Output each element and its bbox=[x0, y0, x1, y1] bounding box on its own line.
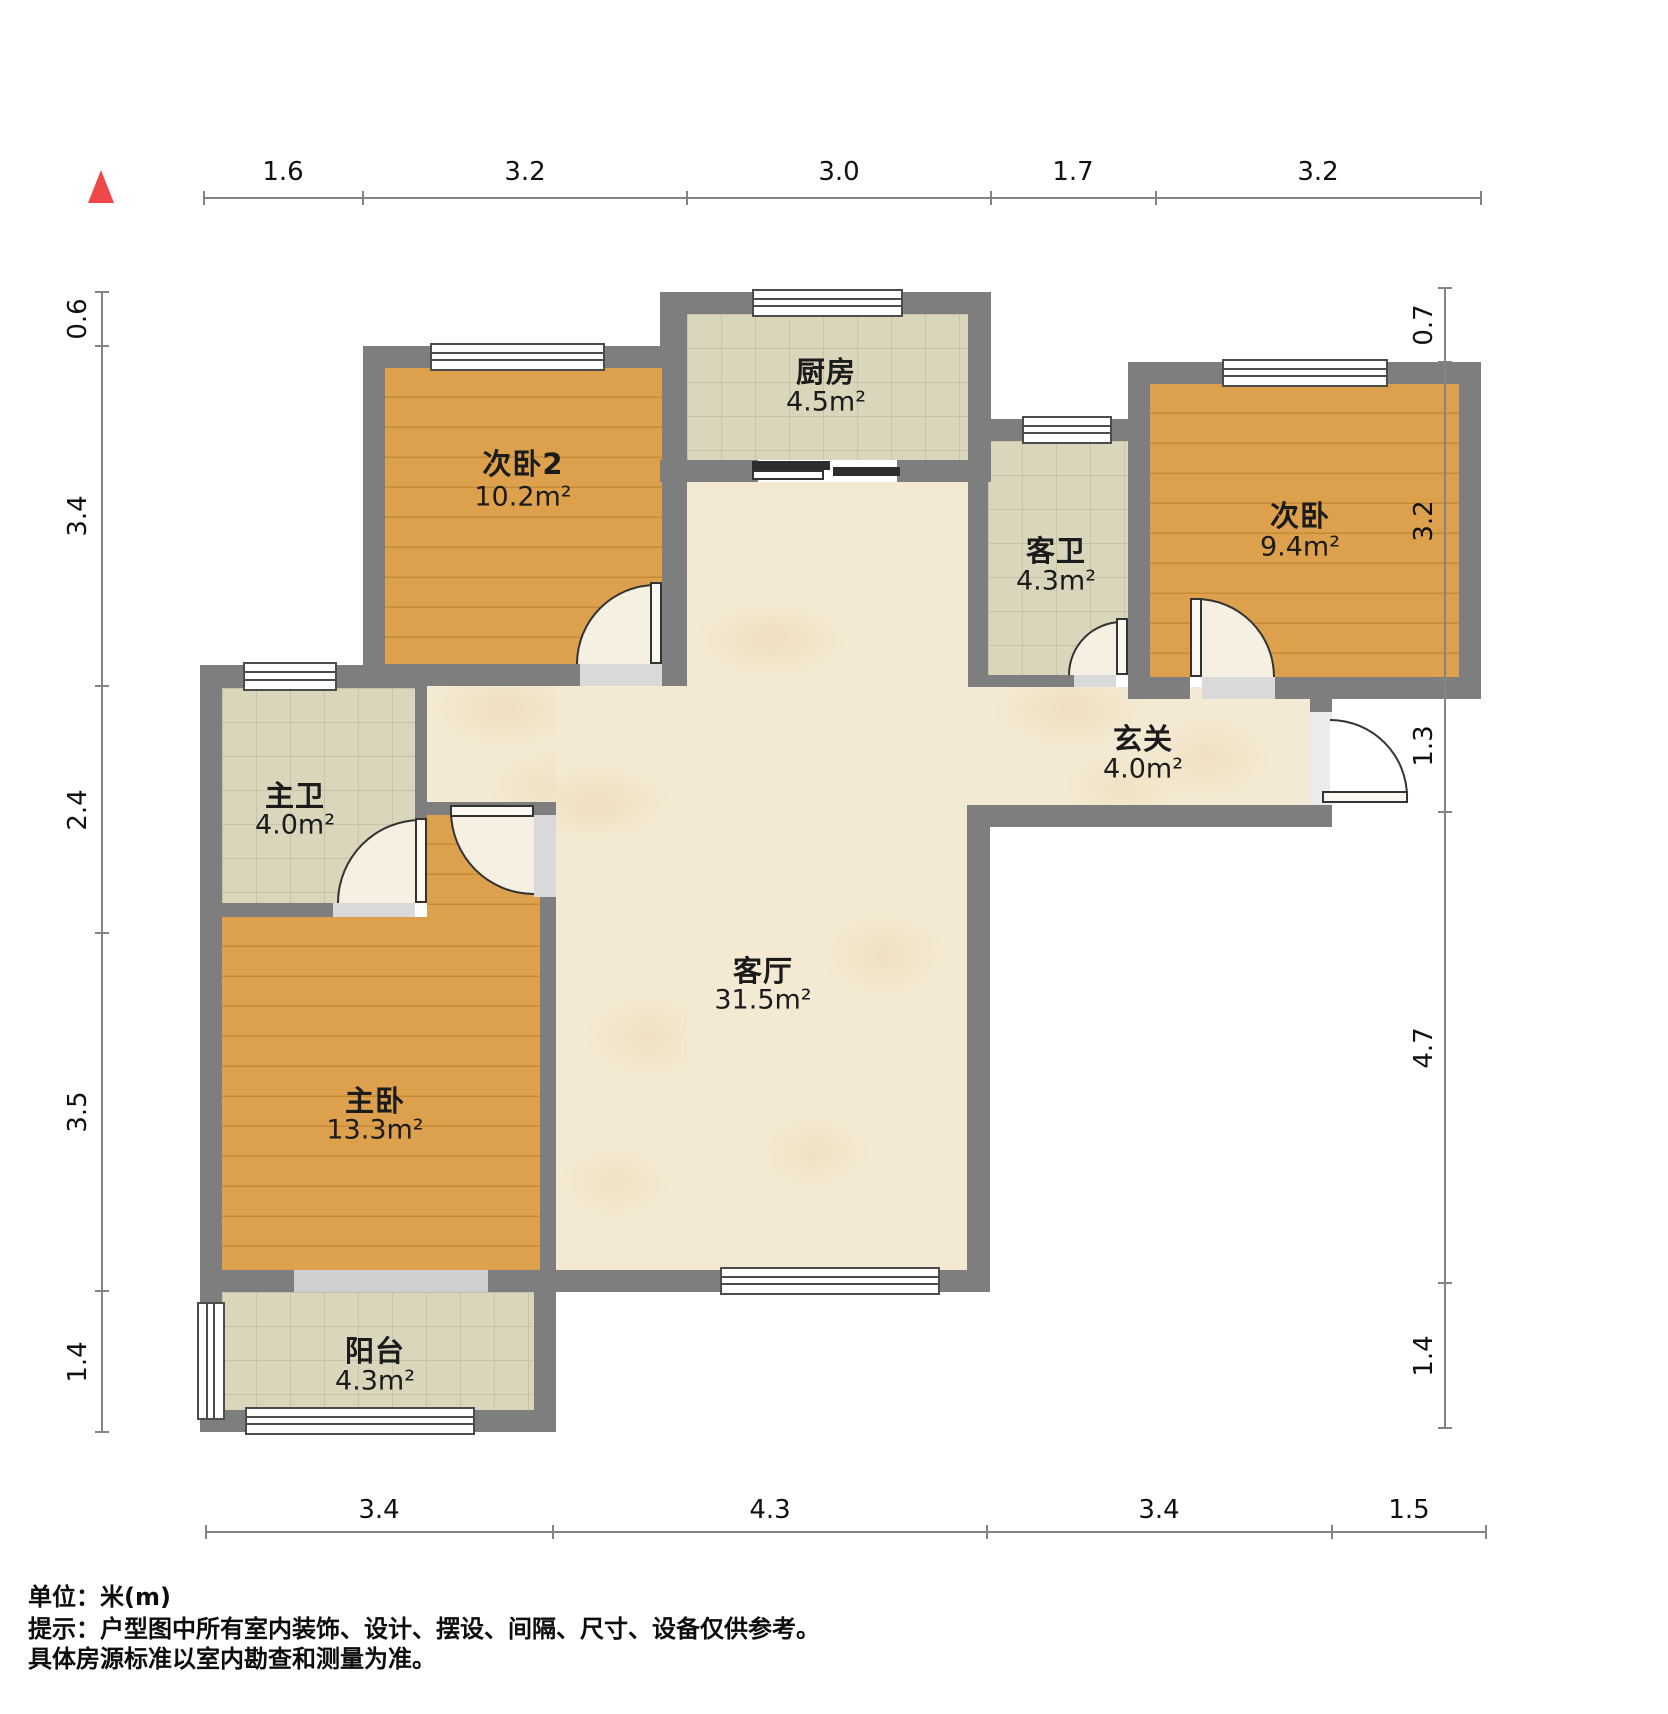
dim-top-1: 1.6 bbox=[262, 157, 303, 187]
room-name-kitchen: 厨房 bbox=[796, 349, 856, 391]
door-leaf-entry bbox=[1322, 791, 1408, 803]
dim-top-4: 1.7 bbox=[1052, 157, 1093, 187]
dim-tick bbox=[552, 1525, 554, 1539]
dim-tick bbox=[95, 291, 109, 293]
room-name-bedroom2: 次卧2 bbox=[482, 441, 563, 483]
dim-tick bbox=[990, 191, 992, 205]
threshold-balcony-opening bbox=[294, 1270, 488, 1292]
wall bbox=[1128, 362, 1150, 699]
wall bbox=[415, 665, 427, 820]
dim-tick bbox=[1485, 1525, 1487, 1539]
floor-living bbox=[687, 482, 968, 1270]
dim-left-2: 3.4 bbox=[63, 495, 93, 536]
wall bbox=[967, 805, 990, 1292]
wall bbox=[1310, 699, 1332, 712]
dim-top-5: 3.2 bbox=[1297, 157, 1338, 187]
room-area-master-bath: 4.0m² bbox=[255, 810, 335, 841]
wall bbox=[540, 897, 556, 1270]
dim-line-right bbox=[1444, 288, 1446, 1428]
dim-right-4: 4.7 bbox=[1409, 1027, 1439, 1068]
wall bbox=[968, 419, 988, 687]
wall bbox=[988, 675, 1074, 687]
unit-note: 单位：米(m) bbox=[28, 1577, 171, 1612]
dim-left-3: 2.4 bbox=[63, 789, 93, 830]
wall bbox=[200, 1270, 294, 1292]
dim-tick bbox=[1438, 1282, 1452, 1284]
dim-tick bbox=[1438, 361, 1452, 363]
threshold-guestbath-door bbox=[1074, 675, 1116, 687]
door-leaf-bedroom2 bbox=[650, 582, 662, 664]
room-area-bedroom2: 10.2m² bbox=[474, 482, 571, 513]
room-name-foyer: 玄关 bbox=[1113, 716, 1173, 758]
dim-left-5: 1.4 bbox=[63, 1341, 93, 1382]
threshold-master-door bbox=[534, 815, 556, 897]
window-balcony-west bbox=[197, 1302, 225, 1420]
dim-top-2: 3.2 bbox=[504, 157, 545, 187]
dim-line-bottom bbox=[206, 1531, 1486, 1533]
room-area-master-bedroom: 13.3m² bbox=[326, 1115, 423, 1146]
dim-left-4: 3.5 bbox=[63, 1091, 93, 1132]
dim-tick bbox=[986, 1525, 988, 1539]
dim-tick bbox=[203, 191, 205, 205]
room-name-guest-bath: 客卫 bbox=[1026, 528, 1086, 570]
room-area-guest-bath: 4.3m² bbox=[1016, 566, 1096, 597]
room-name-bedroom: 次卧 bbox=[1270, 493, 1330, 535]
floorplan-page: 厨房 4.5m² 次卧2 10.2m² 客卫 4.3m² 次卧 9.4m² 玄关… bbox=[0, 0, 1668, 1714]
dim-tick bbox=[1331, 1525, 1333, 1539]
room-area-bedroom: 9.4m² bbox=[1260, 532, 1340, 563]
tip-line-2: 具体房源标准以室内勘查和测量为准。 bbox=[28, 1639, 436, 1674]
threshold-bedroom2-door bbox=[580, 664, 662, 686]
window-balcony-south bbox=[245, 1407, 475, 1435]
room-area-foyer: 4.0m² bbox=[1103, 754, 1183, 785]
dim-tick bbox=[95, 685, 109, 687]
door-leaf-guest-bath bbox=[1116, 618, 1128, 675]
dim-top-3: 3.0 bbox=[818, 157, 859, 187]
dim-left-1: 0.6 bbox=[63, 298, 93, 339]
dim-right-5: 1.4 bbox=[1409, 1335, 1439, 1376]
threshold-masterbath-door bbox=[333, 903, 415, 917]
dim-bottom-1: 3.4 bbox=[358, 1495, 399, 1525]
floor-hall-column bbox=[556, 686, 687, 1270]
wall bbox=[363, 346, 385, 686]
dim-tick bbox=[1438, 287, 1452, 289]
threshold-bedroom-door bbox=[1202, 677, 1275, 699]
window-bedroom2 bbox=[430, 343, 605, 371]
dim-tick bbox=[95, 1290, 109, 1292]
dim-tick bbox=[205, 1525, 207, 1539]
dim-tick bbox=[95, 932, 109, 934]
dim-bottom-2: 4.3 bbox=[749, 1495, 790, 1525]
room-area-living-room: 31.5m² bbox=[714, 985, 811, 1016]
dim-right-3: 1.3 bbox=[1409, 725, 1439, 766]
dim-tick bbox=[95, 345, 109, 347]
dim-tick bbox=[1438, 1427, 1452, 1429]
window-guest-bath bbox=[1022, 416, 1112, 444]
dim-right-1: 0.7 bbox=[1409, 304, 1439, 345]
window-kitchen bbox=[752, 289, 903, 317]
door-leaf-bedroom bbox=[1190, 598, 1202, 677]
dim-bottom-3: 3.4 bbox=[1138, 1495, 1179, 1525]
dim-tick bbox=[686, 191, 688, 205]
window-master-bath bbox=[243, 662, 337, 691]
door-leaf-master-bedroom bbox=[450, 805, 534, 817]
dim-tick bbox=[1438, 811, 1452, 813]
room-area-balcony: 4.3m² bbox=[335, 1366, 415, 1397]
wall bbox=[968, 805, 1332, 827]
dim-bottom-4: 1.5 bbox=[1388, 1495, 1429, 1525]
north-arrow-icon bbox=[88, 170, 114, 203]
wall bbox=[662, 368, 687, 686]
dim-tick bbox=[362, 191, 364, 205]
kitchen-slider-leaf bbox=[752, 470, 824, 480]
door-swing-entry bbox=[1330, 719, 1408, 797]
wall bbox=[1459, 362, 1481, 699]
kitchen-slider-panel-left bbox=[752, 461, 830, 470]
dim-line-top bbox=[204, 197, 1481, 199]
window-bedroom bbox=[1222, 359, 1388, 387]
door-leaf-master-bath bbox=[415, 818, 427, 903]
wall bbox=[222, 903, 333, 917]
dim-tick bbox=[1155, 191, 1157, 205]
dim-tick bbox=[1480, 191, 1482, 205]
room-name-balcony: 阳台 bbox=[345, 1328, 405, 1370]
kitchen-slider-panel-right bbox=[833, 467, 900, 476]
dim-tick bbox=[95, 1431, 109, 1433]
dim-tick bbox=[1438, 679, 1452, 681]
wall bbox=[1128, 677, 1190, 699]
dim-right-2: 3.2 bbox=[1409, 500, 1439, 541]
dim-line-left bbox=[101, 292, 103, 1432]
room-area-kitchen: 4.5m² bbox=[786, 387, 866, 418]
window-living-room bbox=[720, 1267, 940, 1295]
